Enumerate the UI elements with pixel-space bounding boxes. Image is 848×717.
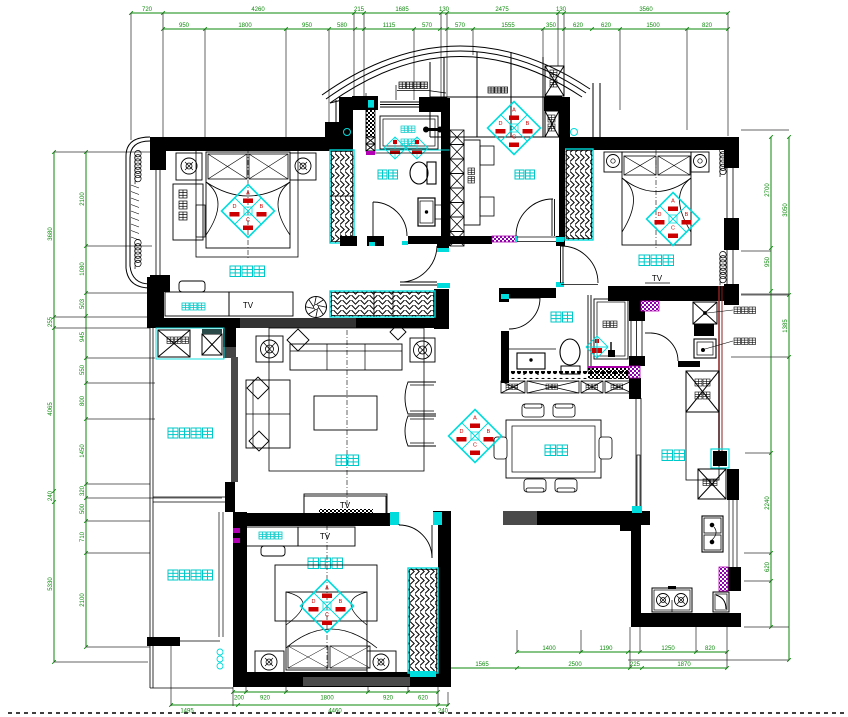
svg-text:C: C [246,218,250,224]
svg-text:A: A [325,585,329,591]
svg-text:D: D [657,212,661,218]
svg-text:1080: 1080 [80,262,86,276]
svg-text:500: 500 [80,503,86,514]
svg-text:800: 800 [80,395,86,406]
svg-text:240: 240 [48,490,54,501]
svg-text:D: D [232,204,236,210]
svg-text:570: 570 [422,23,433,29]
svg-text:3560: 3560 [639,7,653,13]
svg-text:1450: 1450 [80,444,86,458]
svg-text:A: A [246,190,250,196]
svg-text:4260: 4260 [251,7,265,13]
svg-text:D: D [498,121,502,127]
svg-text:1800: 1800 [320,696,334,702]
svg-text:C: C [512,135,516,141]
svg-text:2100: 2100 [80,593,86,607]
svg-text:130: 130 [439,7,450,13]
svg-text:130: 130 [556,7,567,13]
svg-text:950: 950 [179,23,190,29]
svg-text:255: 255 [48,316,54,327]
svg-text:1400: 1400 [542,646,556,652]
svg-text:215: 215 [354,7,365,13]
svg-text:1685: 1685 [395,7,409,13]
svg-text:3050: 3050 [783,203,789,217]
svg-text:2700: 2700 [765,183,771,197]
svg-text:570: 570 [455,23,466,29]
svg-text:D: D [311,599,315,605]
svg-text:C: C [671,226,675,232]
svg-text:820: 820 [702,23,713,29]
svg-text:2500: 2500 [568,662,582,668]
svg-text:C: C [325,613,329,619]
svg-text:920: 920 [260,696,271,702]
svg-text:1800: 1800 [238,23,252,29]
svg-text:1565: 1565 [475,662,489,668]
svg-text:620: 620 [765,561,771,572]
svg-text:503: 503 [80,298,86,309]
svg-text:TV: TV [340,501,351,510]
svg-text:B: B [260,204,264,210]
svg-text:C: C [473,443,477,449]
svg-text:945: 945 [80,331,86,342]
svg-text:B: B [685,212,689,218]
svg-text:3680: 3680 [48,227,54,241]
svg-text:1385: 1385 [783,319,789,333]
svg-text:320: 320 [80,485,86,496]
svg-text:620: 620 [418,696,429,702]
svg-text:950: 950 [302,23,313,29]
svg-text:A: A [671,198,675,204]
svg-text:820: 820 [705,646,716,652]
svg-text:950: 950 [765,256,771,267]
svg-text:2240: 2240 [765,496,771,510]
svg-text:A: A [473,415,477,421]
svg-text:1115: 1115 [383,23,396,29]
svg-text:580: 580 [337,23,348,29]
svg-text:B: B [339,599,343,605]
svg-text:920: 920 [383,696,394,702]
svg-text:550: 550 [80,364,86,375]
svg-text:1500: 1500 [646,23,660,29]
svg-text:TV: TV [320,532,331,541]
svg-text:200: 200 [234,696,245,702]
svg-text:710: 710 [80,531,86,542]
svg-text:TV: TV [652,274,663,283]
svg-text:B: B [526,121,530,127]
svg-text:1555: 1555 [501,23,515,29]
svg-text:350: 350 [546,23,557,29]
svg-text:1870: 1870 [677,662,691,668]
svg-text:5330: 5330 [48,577,54,591]
svg-text:D: D [459,429,463,435]
svg-text:1250: 1250 [661,646,675,652]
svg-text:TV: TV [243,301,254,310]
svg-text:620: 620 [573,23,584,29]
svg-text:2475: 2475 [495,7,509,13]
svg-text:4065: 4065 [48,402,54,416]
svg-text:720: 720 [142,7,153,13]
svg-text:2100: 2100 [80,192,86,206]
svg-text:A: A [512,107,516,113]
svg-text:1190: 1190 [600,646,614,652]
svg-text:225: 225 [630,662,641,668]
svg-text:B: B [487,429,491,435]
svg-text:620: 620 [601,23,612,29]
